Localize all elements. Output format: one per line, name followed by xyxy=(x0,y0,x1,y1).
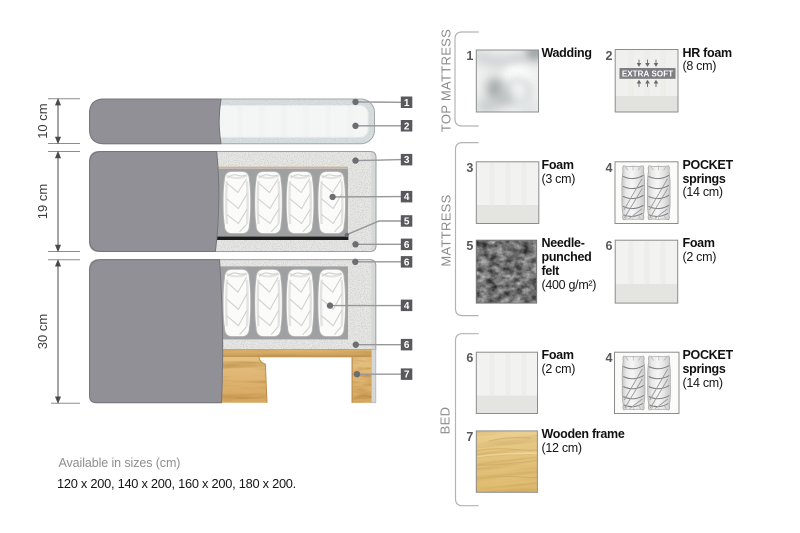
svg-text:30 cm: 30 cm xyxy=(35,314,50,349)
svg-text:6: 6 xyxy=(404,240,410,251)
svg-text:1: 1 xyxy=(404,98,410,109)
svg-text:2: 2 xyxy=(404,121,410,132)
svg-text:EXTRA SOFT: EXTRA SOFT xyxy=(622,70,673,79)
svg-text:6: 6 xyxy=(404,340,410,351)
svg-text:3: 3 xyxy=(404,155,410,166)
svg-text:19 cm: 19 cm xyxy=(35,184,50,219)
svg-text:6: 6 xyxy=(404,257,410,268)
svg-text:7: 7 xyxy=(404,370,410,381)
svg-text:10 cm: 10 cm xyxy=(35,103,50,138)
svg-text:4: 4 xyxy=(404,301,410,312)
svg-text:4: 4 xyxy=(404,192,410,203)
svg-text:5: 5 xyxy=(404,217,410,228)
